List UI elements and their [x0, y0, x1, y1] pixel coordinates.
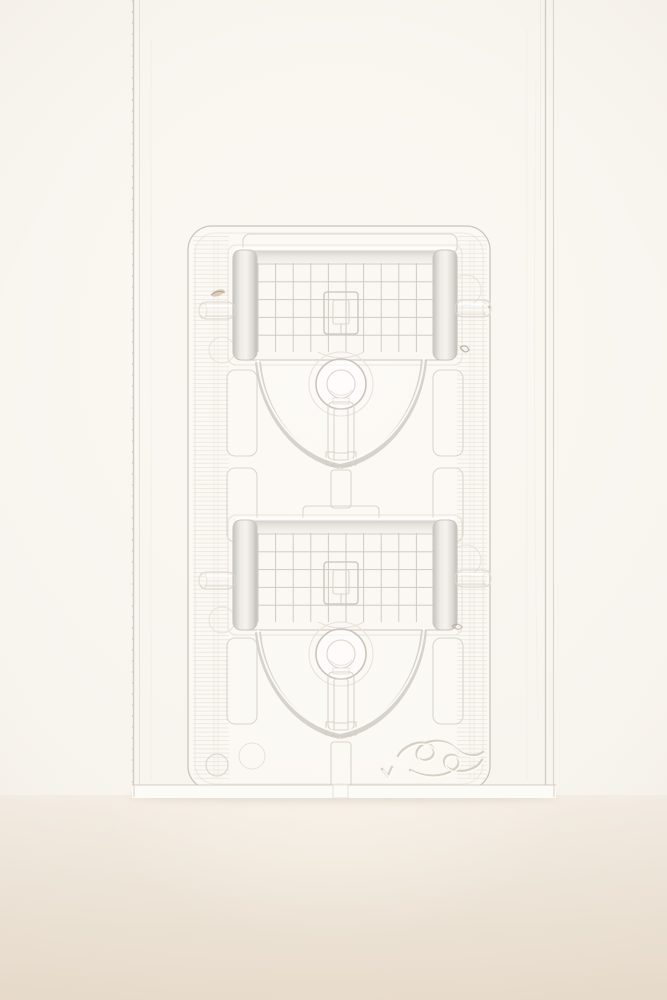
product-photo	[0, 0, 667, 1000]
clamshell-bottom-fold	[132, 785, 556, 798]
blister-package-illustration	[0, 0, 667, 1000]
rib-column-left	[193, 236, 229, 780]
streak	[534, 80, 538, 720]
speck-dot	[488, 306, 491, 309]
